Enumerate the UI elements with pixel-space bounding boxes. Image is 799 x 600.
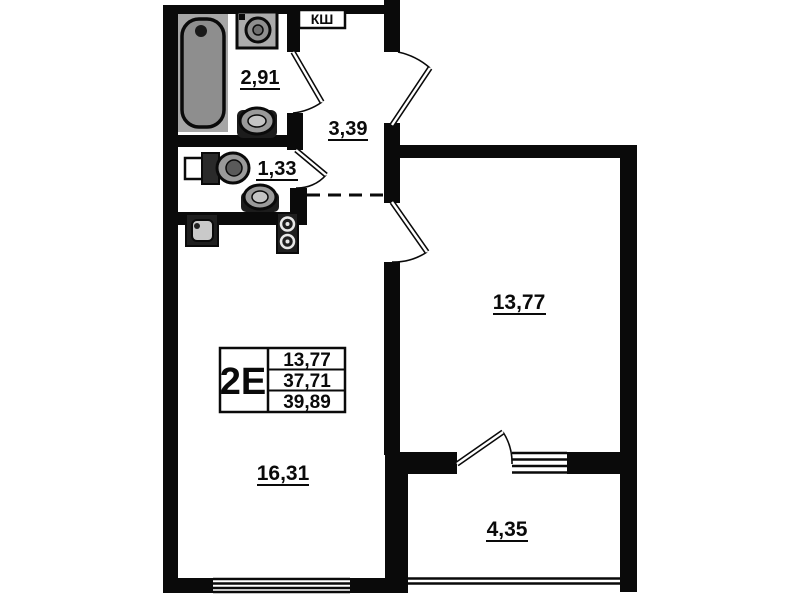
wall-bedroom-balcony-right (567, 452, 620, 474)
unit-area-value: 37,71 (283, 371, 331, 392)
floor-plan: КШ 2Е 13,77 37,71 39,89 2,91 3,39 1,33 1… (0, 0, 799, 600)
unit-type-label: 2Е (220, 361, 266, 403)
bedroom-window (512, 453, 567, 473)
entrance-door (392, 52, 430, 125)
toilet-basin-rect (185, 158, 203, 179)
living-room-window (213, 579, 350, 592)
bathroom-sink (237, 108, 277, 138)
washing-machine (237, 12, 277, 48)
bathtub (178, 14, 228, 132)
kitchen-sink (186, 214, 218, 246)
walls (163, 0, 637, 593)
wall-bottom-right-segment (350, 578, 400, 593)
balcony-glazing (408, 579, 620, 584)
bathroom-area-label: 2,91 (241, 67, 280, 89)
bathtub-drain-icon (195, 25, 207, 37)
toilet-room-sink (241, 185, 279, 212)
hallway-area-label: 3,39 (329, 118, 368, 140)
kitchen-cabinet-tag: КШ (299, 10, 345, 28)
wall-living-bedroom-divider (384, 262, 400, 455)
wall-bedroom-top (398, 145, 628, 158)
kitchen-sink-faucet-icon (194, 223, 200, 229)
unit-info-box: 2Е 13,77 37,71 39,89 (220, 348, 345, 413)
wall-bath-toilet-divider (178, 135, 300, 147)
toilet-area-label: 1,33 (258, 158, 297, 180)
balcony-area-label: 4,35 (487, 518, 528, 541)
wall-hall-right (384, 123, 400, 203)
wall-top (163, 5, 400, 14)
wall-left-exterior (163, 5, 178, 593)
toilet (185, 153, 249, 184)
wall-bottom-left-segment (163, 578, 213, 593)
wall-entrance-stub (384, 0, 400, 52)
bedroom-area-label: 13,77 (493, 291, 546, 314)
kitchen-cabinet-label: КШ (311, 11, 334, 27)
wall-right-exterior (620, 145, 637, 592)
bedroom-door (392, 202, 427, 262)
bathroom-door (293, 52, 322, 113)
wall-bathroom-right-bottom (287, 113, 303, 150)
wall-bedroom-balcony-left (398, 452, 457, 474)
floor-plan-page: КШ 2Е 13,77 37,71 39,89 2,91 3,39 1,33 1… (0, 0, 799, 600)
stove (277, 213, 298, 253)
unit-living-area-value: 13,77 (283, 350, 331, 371)
balcony-door (457, 432, 512, 464)
toilet-door (296, 150, 326, 188)
living-kitchen-area-label: 16,31 (257, 462, 310, 485)
unit-total-area-value: 39,89 (283, 392, 331, 413)
